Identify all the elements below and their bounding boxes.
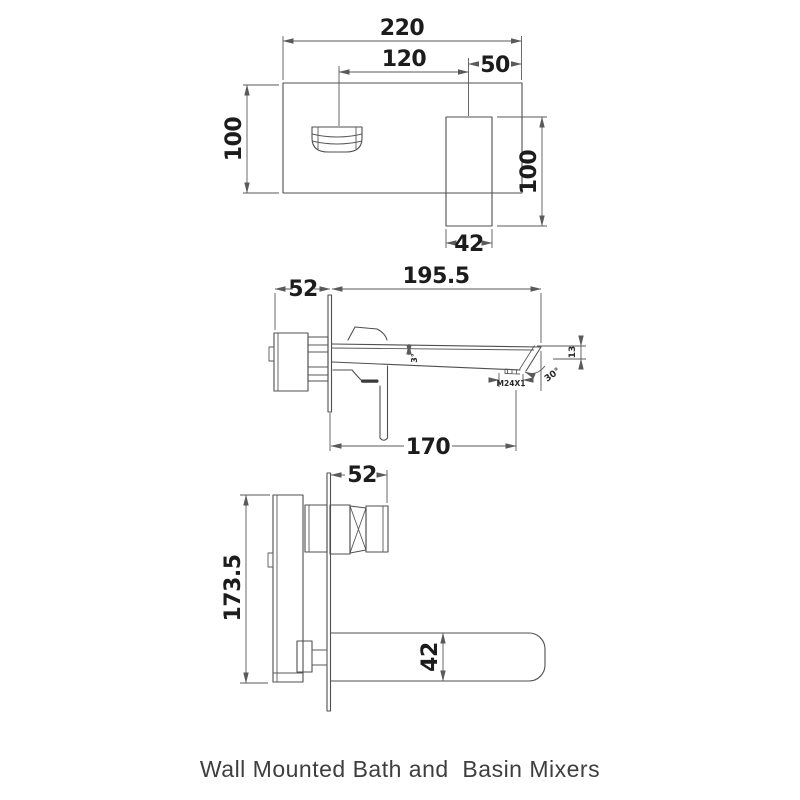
dim-text-42: 42 — [454, 232, 484, 257]
dim-text-220: 220 — [380, 16, 425, 41]
aerator-outlet — [505, 369, 520, 374]
bath-dim-text-42: 42 — [418, 642, 443, 672]
drawing-caption: Wall Mounted Bath and Basin Mixers — [0, 756, 800, 783]
handle-front-outline — [312, 127, 362, 152]
bath-dim-text-173: 173.5 — [221, 554, 246, 621]
dim-text-100-left: 100 — [222, 117, 247, 162]
basin-dim-text-170: 170 — [406, 435, 451, 460]
basin-dim-text-52: 52 — [288, 277, 318, 302]
basin-side-view: 52 195.5 170 3° M24X1 30° 13 — [269, 264, 586, 460]
drawing-canvas: 220 120 50 100 100 42 — [0, 0, 800, 800]
basin-dim-text-3deg: 3° — [410, 353, 419, 363]
dim-text-100-right: 100 — [517, 150, 542, 195]
basin-extension-lines — [275, 293, 586, 451]
basin-dim-text-13: 13 — [568, 346, 578, 359]
bath-dim-text-52: 52 — [347, 463, 377, 488]
lever-grip-mark — [361, 380, 379, 383]
basin-dim-text-195: 195.5 — [402, 264, 469, 289]
dim-text-120: 120 — [382, 47, 427, 72]
bath-extension-lines — [240, 470, 387, 683]
wall-plate-outline — [283, 83, 522, 193]
basin-valve-body — [269, 333, 328, 391]
basin-dim-text-30deg: 30° — [543, 366, 563, 384]
bath-handle-knob — [330, 505, 388, 554]
dim-text-50: 50 — [480, 53, 510, 78]
bath-valve-body — [268, 495, 327, 682]
bath-side-view: 52 173.5 42 — [221, 463, 545, 711]
basin-dim-text-thread: M24X1 — [497, 379, 526, 388]
spout-front-outline — [446, 117, 492, 226]
technical-drawing-page: 220 120 50 100 100 42 — [0, 0, 800, 800]
basin-spout-outline — [332, 344, 541, 374]
front-view: 220 120 50 100 100 42 — [222, 16, 547, 257]
